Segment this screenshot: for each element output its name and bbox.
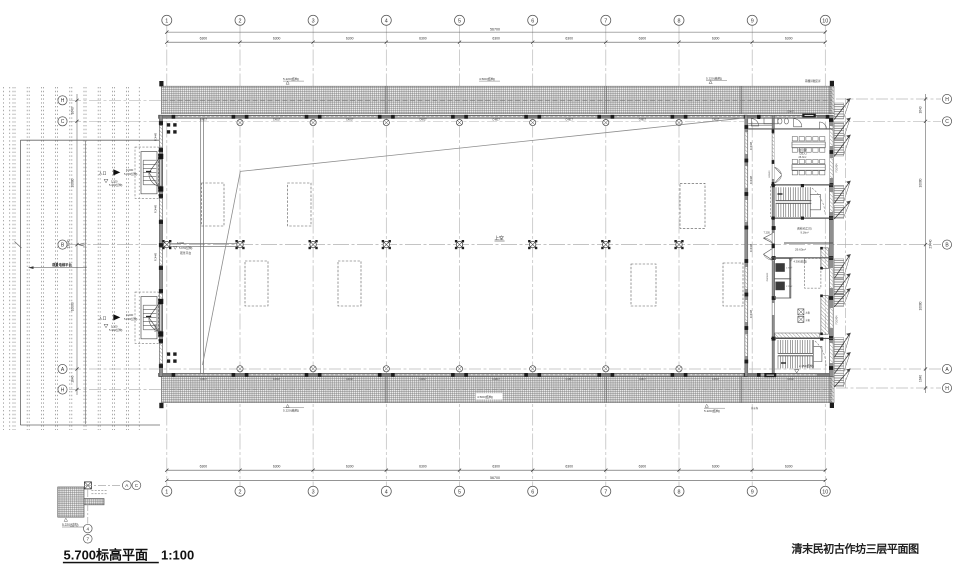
- svg-text:M0923: M0923: [769, 170, 771, 177]
- svg-text:6300: 6300: [346, 36, 354, 40]
- svg-text:1640: 1640: [919, 375, 923, 382]
- svg-text:7: 7: [604, 489, 607, 495]
- svg-text:FDC404: FDC404: [836, 163, 839, 173]
- svg-text:清末民初古作坊三层平面图: 清末民初古作坊三层平面图: [792, 542, 920, 556]
- svg-text:C4817: C4817: [419, 119, 427, 122]
- svg-text:(20人): (20人): [800, 152, 807, 156]
- svg-text:FC4448: FC4448: [751, 175, 753, 184]
- svg-text:FC4448: FC4448: [751, 141, 753, 150]
- svg-text:5.200: 5.200: [111, 324, 118, 328]
- svg-text:2: 2: [239, 18, 242, 24]
- svg-text:1: 1: [165, 18, 168, 24]
- svg-text:C5407: C5407: [787, 111, 795, 114]
- svg-text:6300: 6300: [565, 36, 573, 40]
- svg-text:C4817: C4817: [346, 378, 354, 381]
- svg-text:7.205: 7.205: [764, 232, 771, 235]
- svg-text:6.000: 6.000: [126, 313, 134, 317]
- svg-text:4.300(结构): 4.300(结构): [794, 260, 808, 264]
- svg-text:56700: 56700: [490, 476, 500, 480]
- svg-text:1:100: 1:100: [161, 547, 194, 562]
- svg-text:5.970(结构): 5.970(结构): [124, 172, 138, 176]
- svg-text:观景电梯平台: 观景电梯平台: [52, 262, 72, 267]
- svg-text:雨棚详图见详: 雨棚详图见详: [805, 79, 821, 83]
- svg-text:FDC404: FDC404: [836, 315, 839, 325]
- svg-text:5.220(结构): 5.220(结构): [283, 408, 299, 413]
- svg-text:5.970(结构): 5.970(结构): [124, 317, 138, 321]
- svg-text:C: C: [61, 119, 65, 125]
- svg-text:H: H: [61, 98, 65, 104]
- svg-text:9: 9: [751, 18, 754, 24]
- svg-text:6: 6: [531, 18, 534, 24]
- svg-text:6300: 6300: [273, 464, 281, 468]
- svg-text:5: 5: [458, 18, 461, 24]
- svg-text:5.220(结构): 5.220(结构): [704, 408, 720, 413]
- svg-text:C4817: C4817: [639, 119, 647, 122]
- svg-text:2.153(结构): 2.153(结构): [799, 364, 814, 368]
- svg-text:6300: 6300: [712, 464, 720, 468]
- svg-text:6300: 6300: [346, 464, 354, 468]
- svg-text:FC4448: FC4448: [156, 204, 158, 213]
- svg-text:FC4448: FC4448: [156, 132, 158, 141]
- svg-text:10080: 10080: [919, 301, 923, 310]
- svg-text:10080: 10080: [71, 302, 75, 311]
- svg-text:6.000: 6.000: [126, 168, 134, 172]
- svg-text:10: 10: [822, 489, 828, 495]
- svg-text:10: 10: [822, 18, 828, 24]
- svg-text:1: 1: [165, 489, 168, 495]
- svg-text:29.63m²: 29.63m²: [795, 248, 806, 252]
- svg-text:C4817: C4817: [346, 119, 354, 122]
- svg-text:10080: 10080: [919, 178, 923, 187]
- svg-text:C4817: C4817: [419, 378, 427, 381]
- svg-text:FC4448: FC4448: [751, 309, 753, 318]
- svg-text:入口: 入口: [99, 316, 107, 321]
- svg-text:FC4448: FC4448: [156, 252, 158, 261]
- svg-text:9: 9: [751, 489, 754, 495]
- svg-text:5.400(结构): 5.400(结构): [109, 183, 123, 187]
- svg-text:1640: 1640: [71, 107, 75, 114]
- svg-text:5.400(结构): 5.400(结构): [109, 328, 123, 332]
- svg-text:H: H: [945, 386, 949, 392]
- svg-text:5.220(结构): 5.220(结构): [62, 522, 78, 527]
- svg-text:7: 7: [87, 537, 90, 542]
- svg-text:3: 3: [312, 18, 315, 24]
- svg-text:6300: 6300: [639, 464, 647, 468]
- svg-text:5: 5: [458, 489, 461, 495]
- svg-text:上空: 上空: [495, 235, 505, 241]
- svg-text:排水沟: 排水沟: [751, 406, 759, 410]
- svg-text:C4817: C4817: [566, 378, 574, 381]
- svg-text:4.500(结构): 4.500(结构): [479, 76, 495, 81]
- svg-text:H: H: [61, 387, 65, 393]
- svg-text:6300: 6300: [200, 464, 208, 468]
- svg-text:H: H: [945, 97, 949, 103]
- svg-text:5.220(结构): 5.220(结构): [283, 76, 299, 81]
- svg-text:6.000: 6.000: [177, 241, 184, 245]
- svg-text:6300: 6300: [492, 36, 500, 40]
- svg-text:8: 8: [678, 18, 681, 24]
- svg-text:3: 3: [312, 489, 315, 495]
- svg-text:6300: 6300: [419, 464, 427, 468]
- svg-text:C4817: C4817: [273, 119, 281, 122]
- svg-text:6300: 6300: [712, 36, 720, 40]
- svg-text:入口: 入口: [99, 171, 107, 176]
- svg-text:6300: 6300: [492, 464, 500, 468]
- svg-text:C4817: C4817: [566, 119, 574, 122]
- svg-text:6: 6: [531, 489, 534, 495]
- svg-text:C4817: C4817: [200, 378, 208, 381]
- svg-text:C4M2: C4M2: [787, 378, 794, 381]
- svg-text:1640: 1640: [919, 106, 923, 113]
- svg-text:观景平台: 观景平台: [180, 251, 191, 255]
- svg-text:6300: 6300: [565, 464, 573, 468]
- svg-text:4: 4: [87, 526, 90, 531]
- svg-text:4: 4: [385, 18, 388, 24]
- svg-text:4: 4: [385, 489, 388, 495]
- svg-text:C4817: C4817: [492, 119, 500, 122]
- svg-text:10080: 10080: [71, 178, 75, 187]
- svg-text:6300: 6300: [419, 36, 427, 40]
- svg-text:6300: 6300: [785, 464, 793, 468]
- svg-text:26.3m²: 26.3m²: [799, 156, 807, 159]
- svg-text:1.75m²: 1.75m²: [786, 267, 793, 270]
- svg-text:FC4448: FC4448: [751, 243, 753, 252]
- svg-text:5.970(结构): 5.970(结构): [179, 246, 193, 250]
- svg-text:6300: 6300: [785, 36, 793, 40]
- svg-text:1.75m²: 1.75m²: [786, 285, 793, 288]
- svg-text:7: 7: [604, 18, 607, 24]
- svg-text:56700: 56700: [490, 28, 500, 32]
- svg-text:9.16m²: 9.16m²: [801, 230, 809, 234]
- svg-text:4.500(结构): 4.500(结构): [477, 394, 493, 399]
- svg-text:1640: 1640: [71, 375, 75, 382]
- svg-text:6300: 6300: [200, 36, 208, 40]
- svg-text:5.700标高平面: 5.700标高平面: [64, 547, 149, 562]
- svg-text:会议室: 会议室: [799, 148, 808, 152]
- svg-text:2: 2: [239, 489, 242, 495]
- svg-text:C4817: C4817: [492, 378, 500, 381]
- svg-text:23440: 23440: [929, 239, 933, 248]
- svg-text:5.220(结构): 5.220(结构): [706, 76, 722, 81]
- svg-text:资料间(工具): 资料间(工具): [797, 226, 812, 230]
- svg-text:6300: 6300: [273, 36, 281, 40]
- svg-text:8: 8: [678, 489, 681, 495]
- svg-text:C4817: C4817: [712, 378, 720, 381]
- svg-text:C4817: C4817: [639, 378, 647, 381]
- svg-text:6300: 6300: [639, 36, 647, 40]
- svg-text:PW0923: PW0923: [767, 272, 769, 281]
- svg-text:5.200: 5.200: [111, 179, 118, 183]
- svg-text:C4817: C4817: [273, 378, 281, 381]
- svg-text:C: C: [945, 119, 949, 125]
